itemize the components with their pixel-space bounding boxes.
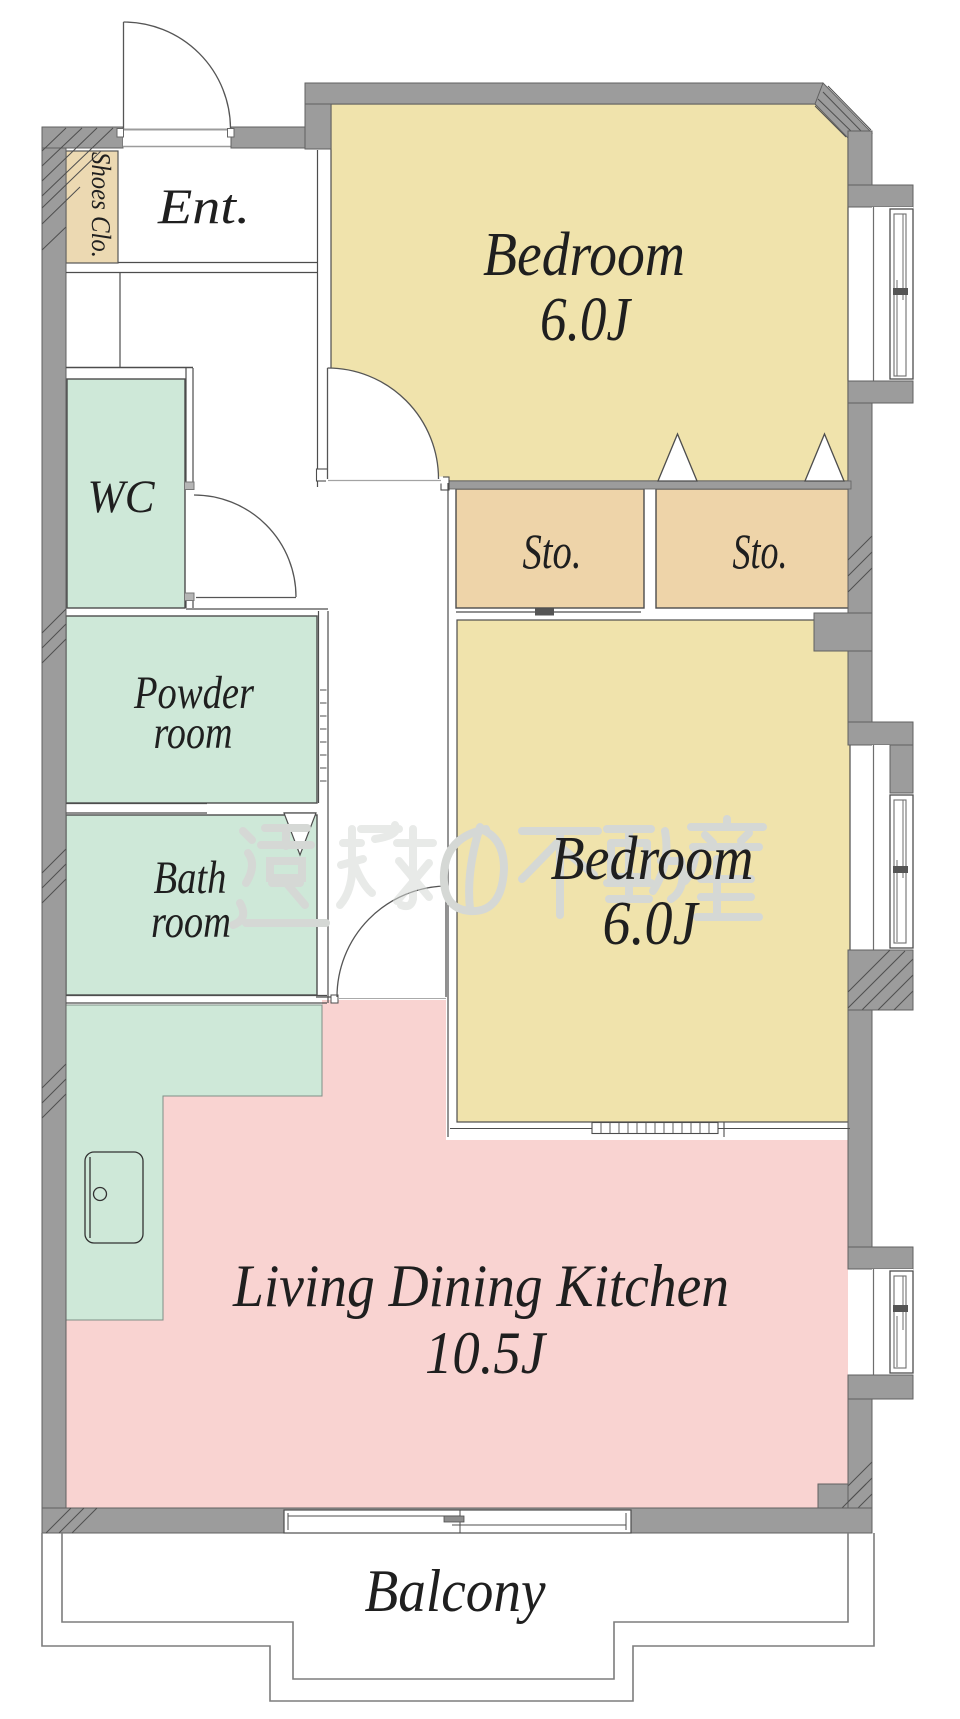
svg-text:10.5J: 10.5J (425, 1320, 547, 1386)
svg-text:Bedroom: Bedroom (551, 825, 754, 893)
svg-text:Living Dining Kitchen: Living Dining Kitchen (232, 1253, 729, 1319)
svg-text:Shoes Clo.: Shoes Clo. (86, 152, 116, 258)
svg-text:Balcony: Balcony (365, 1558, 546, 1624)
svg-text:room: room (151, 896, 231, 948)
svg-text:room: room (154, 707, 233, 759)
svg-text:WC: WC (88, 471, 156, 523)
svg-text:Bedroom: Bedroom (483, 221, 685, 289)
svg-text:Ent.: Ent. (157, 178, 250, 234)
svg-text:6.0J: 6.0J (540, 286, 632, 354)
svg-text:6.0J: 6.0J (603, 890, 700, 958)
svg-text:Sto.: Sto. (523, 523, 582, 579)
svg-text:Sto.: Sto. (733, 523, 788, 579)
